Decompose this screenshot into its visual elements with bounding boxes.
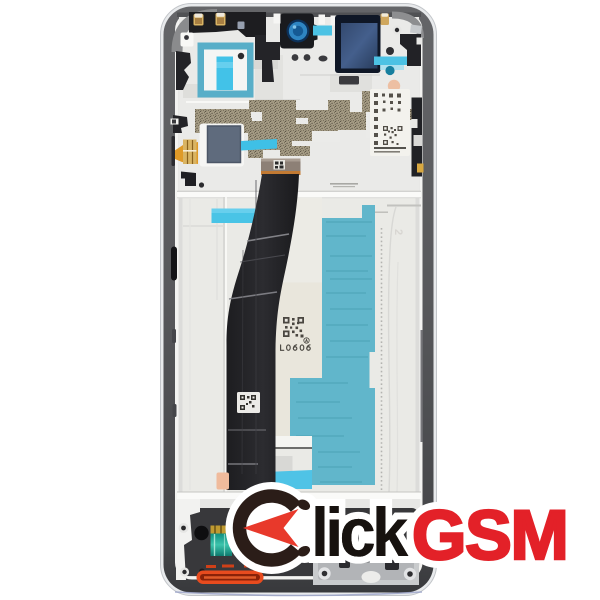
svg-text:lick: lick (311, 494, 409, 571)
svg-text:2: 2 (392, 229, 404, 235)
svg-text:GSM: GSM (412, 496, 567, 574)
